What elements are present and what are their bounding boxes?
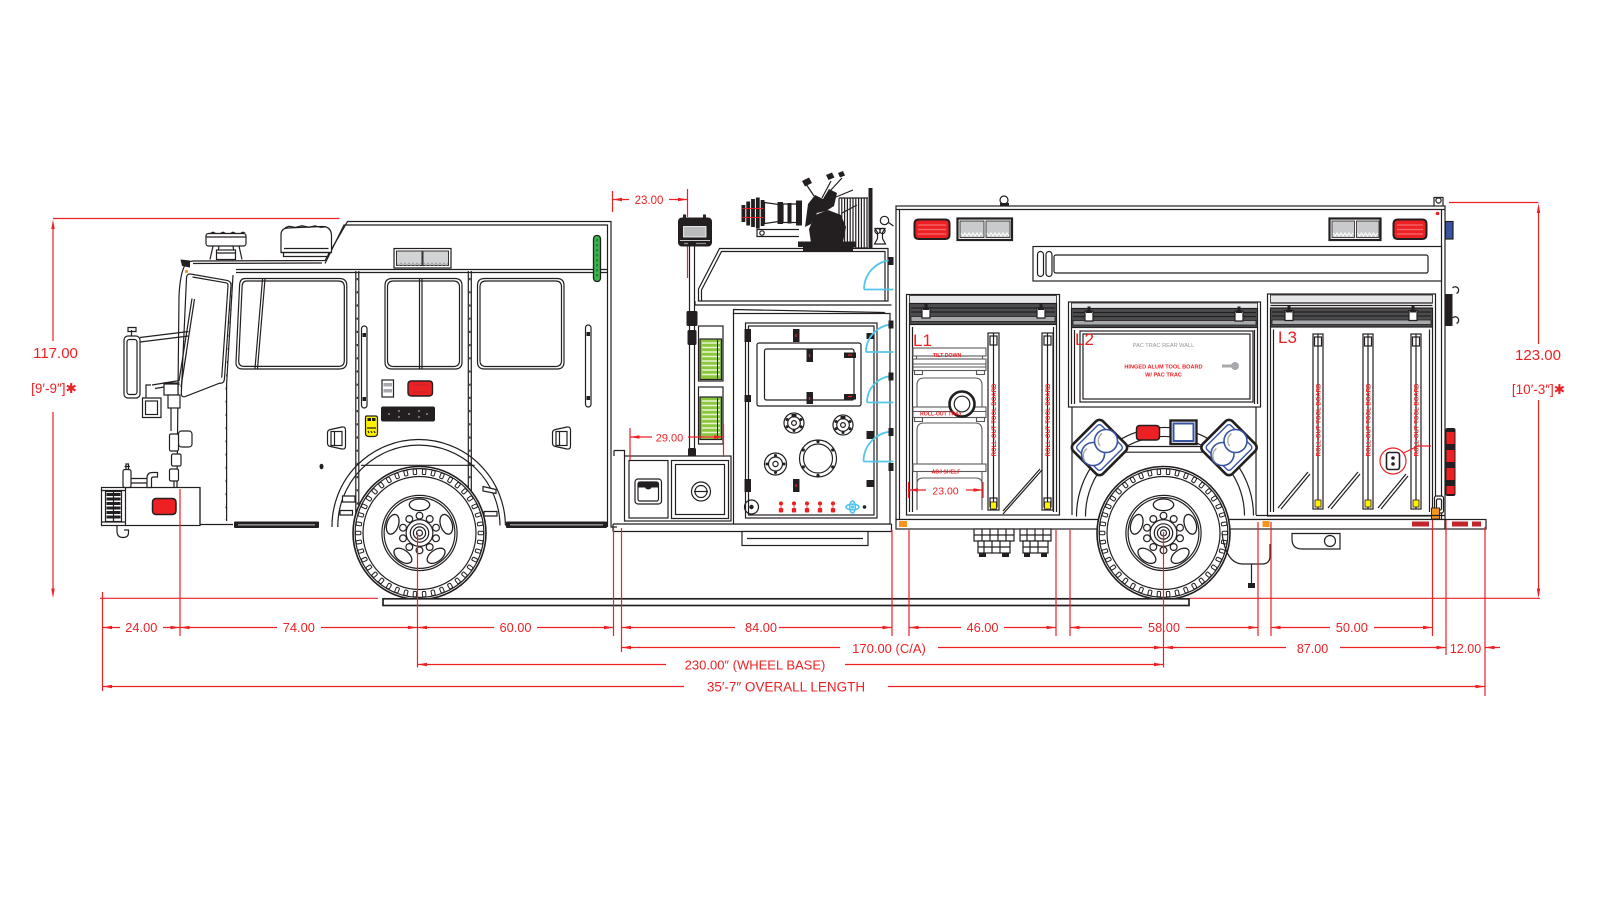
svg-text:L1: L1	[913, 331, 932, 350]
svg-text:84.00: 84.00	[745, 620, 777, 635]
svg-text:ROLL-OUT TRAY: ROLL-OUT TRAY	[920, 412, 962, 418]
svg-text:230.00″ (WHEEL BASE): 230.00″ (WHEEL BASE)	[685, 658, 826, 673]
svg-text:23.00: 23.00	[932, 486, 958, 498]
svg-text:HINGED ALUM TOOL BOARD: HINGED ALUM TOOL BOARD	[1124, 365, 1202, 371]
svg-text:24.00: 24.00	[125, 620, 157, 635]
svg-text:74.00: 74.00	[283, 620, 315, 635]
svg-text:L3: L3	[1278, 328, 1297, 347]
svg-text:35′-7″ OVERALL LENGTH: 35′-7″ OVERALL LENGTH	[707, 680, 865, 695]
svg-text:60.00: 60.00	[499, 620, 531, 635]
svg-text:117.00: 117.00	[33, 345, 78, 362]
svg-text:ROLL-OUT TOOL BOARD: ROLL-OUT TOOL BOARD	[992, 383, 998, 456]
svg-text:TILT DOWN: TILT DOWN	[933, 353, 962, 359]
svg-text:ROLL-OUT TOOL BOARD: ROLL-OUT TOOL BOARD	[1366, 383, 1372, 456]
svg-text:12.00: 12.00	[1450, 642, 1481, 656]
svg-text:L2: L2	[1075, 330, 1094, 349]
svg-text:W/ PAC TRAC: W/ PAC TRAC	[1145, 373, 1182, 379]
svg-text:[10′-3″]✱: [10′-3″]✱	[1512, 382, 1565, 397]
svg-text:ROLL-OUT TOOL BOARD: ROLL-OUT TOOL BOARD	[1046, 383, 1052, 456]
svg-text:58.00: 58.00	[1148, 620, 1180, 635]
svg-text:ROLL-OUT TOOL BOARD: ROLL-OUT TOOL BOARD	[1316, 383, 1322, 456]
svg-text:46.00: 46.00	[966, 620, 998, 635]
svg-text:23.00: 23.00	[635, 195, 664, 207]
svg-text:[9′-9″]✱: [9′-9″]✱	[31, 381, 77, 396]
svg-text:87.00: 87.00	[1297, 642, 1328, 656]
svg-text:ROLL-OUT TOOL BOARD: ROLL-OUT TOOL BOARD	[1414, 383, 1420, 456]
svg-text:29.00: 29.00	[656, 433, 684, 445]
svg-text:170.00 (C/A): 170.00 (C/A)	[852, 641, 926, 656]
svg-text:PAC TRAC REAR WALL: PAC TRAC REAR WALL	[1133, 343, 1194, 349]
svg-text:123.00: 123.00	[1515, 347, 1561, 364]
svg-text:ADJ SHELF: ADJ SHELF	[932, 470, 961, 476]
svg-text:50.00: 50.00	[1336, 620, 1368, 635]
